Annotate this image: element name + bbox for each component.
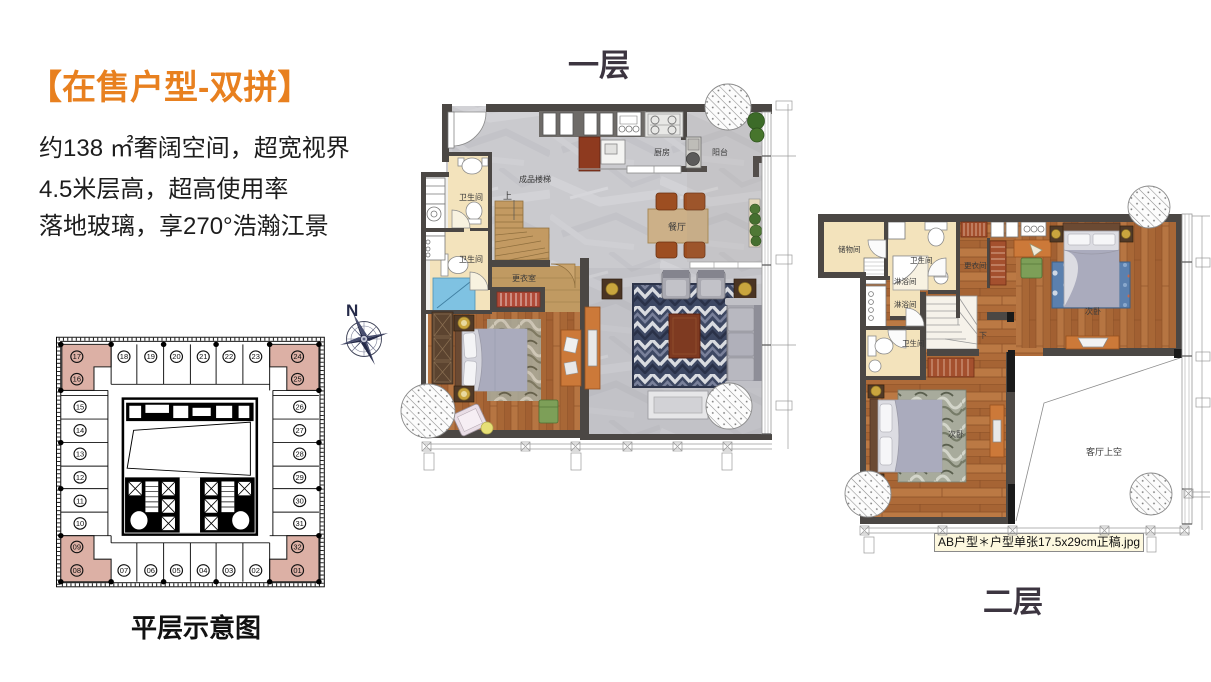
svg-text:17: 17 — [73, 352, 81, 361]
svg-text:32: 32 — [293, 543, 301, 552]
svg-text:阳台: 阳台 — [712, 147, 728, 157]
svg-text:10: 10 — [76, 519, 84, 528]
svg-text:16: 16 — [73, 375, 81, 384]
svg-text:24: 24 — [293, 352, 301, 361]
svg-text:成品楼梯: 成品楼梯 — [519, 174, 551, 184]
svg-text:卫生间: 卫生间 — [459, 192, 483, 202]
svg-text:21: 21 — [199, 352, 207, 361]
svg-text:15: 15 — [76, 403, 84, 412]
svg-text:14: 14 — [76, 426, 84, 435]
svg-text:储物间: 储物间 — [838, 244, 861, 254]
svg-text:下: 下 — [979, 331, 987, 340]
svg-text:更衣间: 更衣间 — [964, 260, 987, 270]
svg-text:02: 02 — [252, 566, 260, 575]
svg-text:06: 06 — [147, 566, 155, 575]
svg-text:19: 19 — [147, 352, 155, 361]
svg-text:29: 29 — [295, 473, 303, 482]
svg-text:11: 11 — [76, 497, 84, 506]
svg-text:09: 09 — [73, 543, 81, 552]
svg-text:01: 01 — [293, 566, 301, 575]
svg-text:更衣室: 更衣室 — [512, 273, 536, 283]
svg-text:20: 20 — [172, 352, 180, 361]
svg-text:客厅上空: 客厅上空 — [1086, 446, 1122, 457]
svg-text:12: 12 — [76, 473, 84, 482]
svg-text:N: N — [346, 303, 358, 320]
svg-text:18: 18 — [120, 352, 128, 361]
svg-text:餐厅: 餐厅 — [668, 221, 686, 232]
svg-text:07: 07 — [120, 566, 128, 575]
svg-text:26: 26 — [295, 403, 303, 412]
svg-text:淋浴间: 淋浴间 — [894, 299, 917, 309]
svg-text:次卧: 次卧 — [948, 429, 964, 439]
svg-text:厨房: 厨房 — [654, 147, 670, 157]
svg-text:卫生间: 卫生间 — [902, 338, 925, 348]
svg-text:27: 27 — [295, 426, 303, 435]
svg-text:淋浴间: 淋浴间 — [894, 276, 917, 286]
svg-text:13: 13 — [76, 450, 84, 459]
svg-text:卫生间: 卫生间 — [459, 254, 483, 264]
svg-text:08: 08 — [73, 566, 81, 575]
svg-text:25: 25 — [293, 375, 301, 384]
svg-text:28: 28 — [295, 450, 303, 459]
svg-text:卫生间: 卫生间 — [910, 255, 933, 265]
svg-text:23: 23 — [252, 352, 260, 361]
svg-text:05: 05 — [172, 566, 180, 575]
svg-text:31: 31 — [295, 519, 303, 528]
svg-text:30: 30 — [295, 497, 303, 506]
svg-text:22: 22 — [225, 352, 233, 361]
svg-text:次卧: 次卧 — [1085, 306, 1101, 316]
svg-text:04: 04 — [199, 566, 207, 575]
svg-text:上: 上 — [503, 191, 512, 201]
svg-text:03: 03 — [225, 566, 233, 575]
